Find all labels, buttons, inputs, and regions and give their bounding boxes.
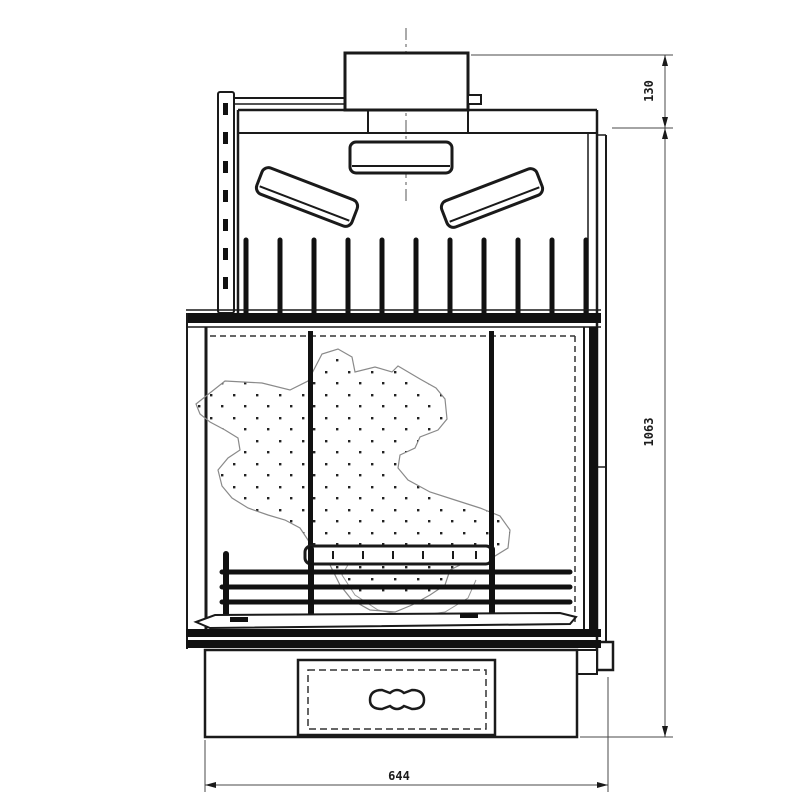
dimension-height-130: 130 bbox=[471, 55, 673, 128]
ash-drawer bbox=[298, 660, 495, 735]
strip-slot bbox=[223, 248, 228, 260]
left-mounting-strip bbox=[218, 92, 234, 313]
dim-label-644: 644 bbox=[388, 769, 410, 783]
strip-slot bbox=[223, 219, 228, 231]
strip-slot bbox=[223, 132, 228, 144]
baffle-left bbox=[254, 166, 359, 229]
dim-label-1063: 1063 bbox=[642, 418, 656, 447]
strip-slot bbox=[223, 277, 228, 289]
top-rim-lines bbox=[233, 98, 345, 104]
firebrick-panel bbox=[196, 349, 510, 617]
flue-collar-tab bbox=[468, 95, 481, 104]
hearth-sill bbox=[196, 613, 576, 628]
fireplace-front-view-drawing: 130 1063 644 bbox=[0, 0, 800, 800]
door-right-frame bbox=[584, 327, 598, 632]
dim-label-130: 130 bbox=[642, 80, 656, 102]
door-left-frame bbox=[187, 313, 206, 649]
technical-drawing-page: 130 1063 644 bbox=[0, 0, 800, 800]
baffle-right bbox=[439, 167, 544, 230]
baffle-center bbox=[350, 142, 452, 173]
flue-collar bbox=[345, 53, 481, 110]
side-panel-foot-inner bbox=[577, 650, 597, 674]
strip-slot bbox=[223, 190, 228, 202]
grate-front-bar bbox=[305, 546, 492, 564]
heat-fins bbox=[246, 240, 586, 314]
drawer-handle bbox=[370, 690, 424, 709]
strip-slot bbox=[223, 161, 228, 173]
door-bottom-band bbox=[186, 629, 601, 648]
strip-slot bbox=[223, 103, 228, 115]
top-plate bbox=[238, 110, 597, 133]
